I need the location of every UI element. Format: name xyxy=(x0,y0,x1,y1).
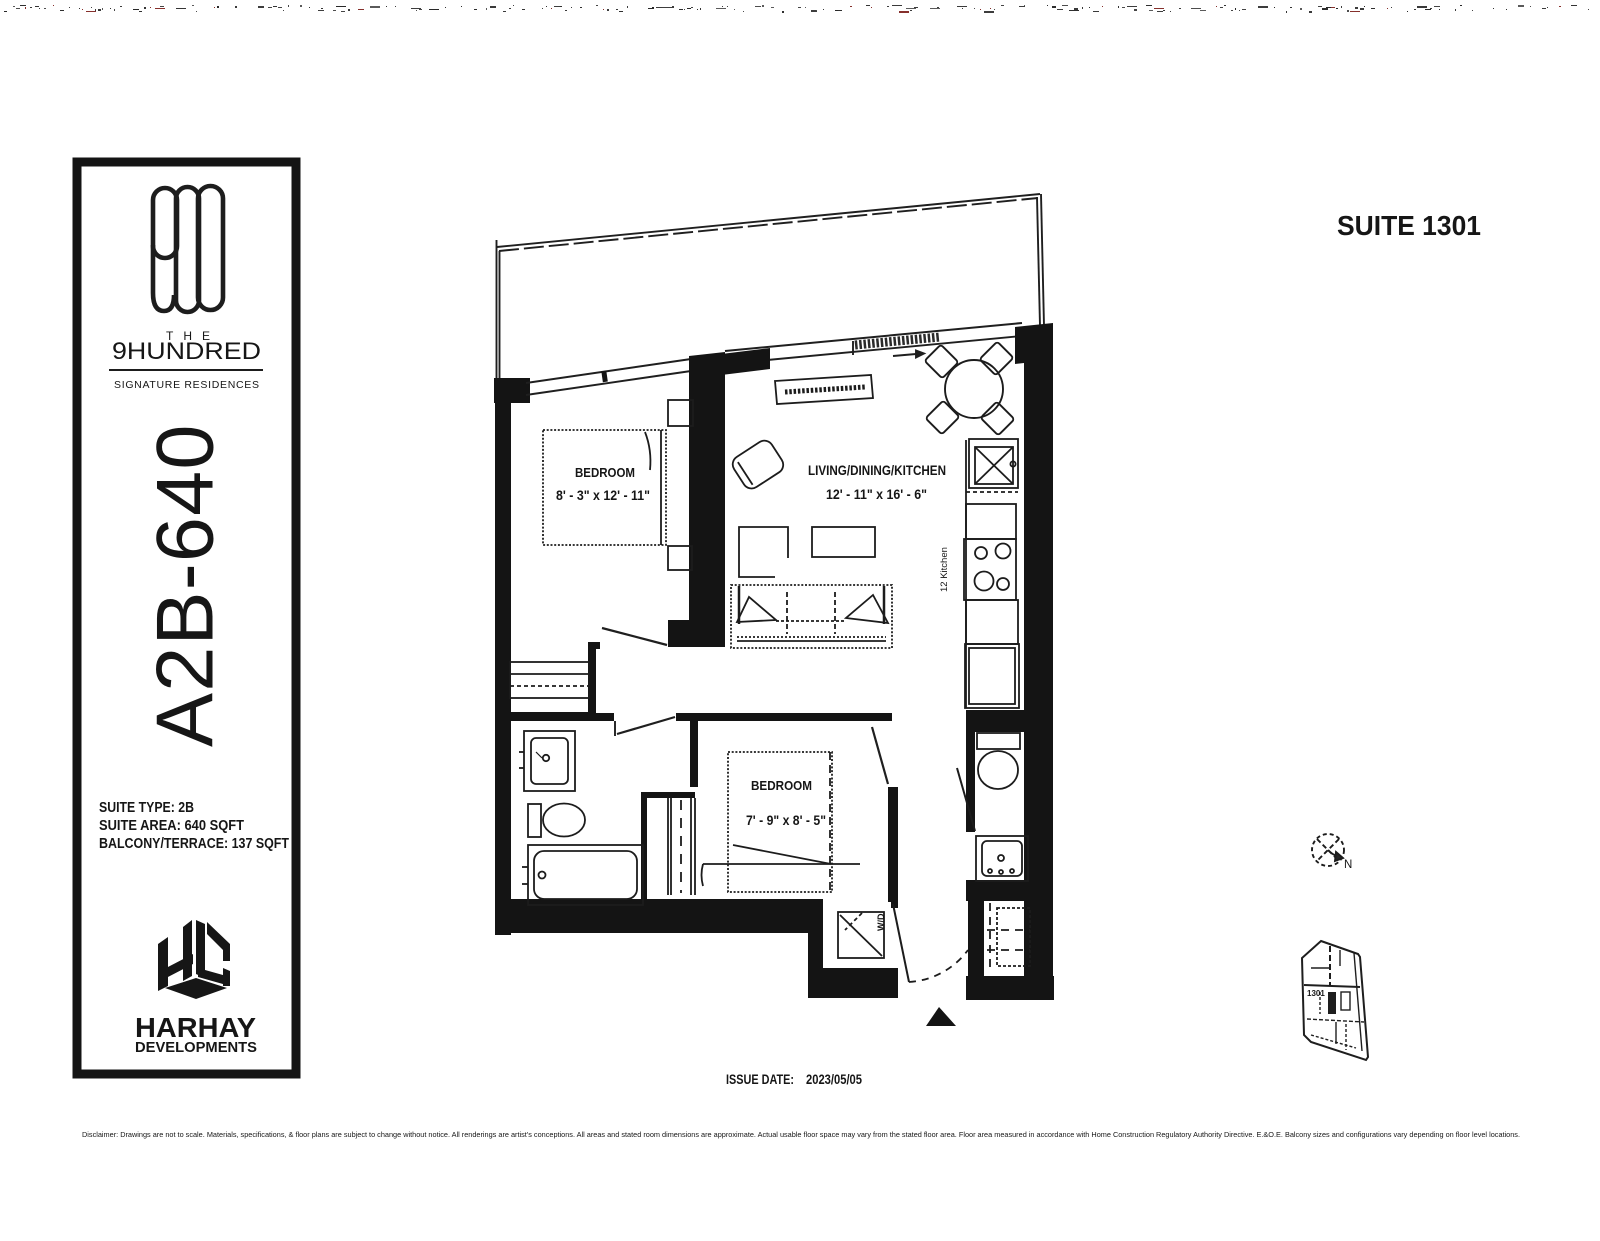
svg-text:2023/05/05: 2023/05/05 xyxy=(806,1071,862,1087)
svg-text:A2B-640: A2B-640 xyxy=(141,423,231,747)
svg-text:DEVELOPMENTS: DEVELOPMENTS xyxy=(135,1040,257,1056)
svg-text:Disclaimer: Drawings are not t: Disclaimer: Drawings are not to scale. M… xyxy=(82,1130,1520,1139)
svg-text:8' - 3" x 12' - 11": 8' - 3" x 12' - 11" xyxy=(556,488,650,503)
svg-text:SUITE TYPE: 2B: SUITE TYPE: 2B xyxy=(99,800,194,816)
svg-text:BEDROOM: BEDROOM xyxy=(575,465,635,480)
svg-text:LIVING/DINING/KITCHEN: LIVING/DINING/KITCHEN xyxy=(808,462,946,478)
svg-text:HARHAY: HARHAY xyxy=(135,1012,256,1043)
svg-text:W/D: W/D xyxy=(876,913,886,931)
svg-text:BALCONY/TERRACE: 137 SQFT: BALCONY/TERRACE: 137 SQFT xyxy=(99,836,289,852)
svg-text:12 Kitchen: 12 Kitchen xyxy=(939,547,950,592)
svg-text:SUITE AREA: 640 SQFT: SUITE AREA: 640 SQFT xyxy=(99,818,244,834)
svg-text:ISSUE DATE:: ISSUE DATE: xyxy=(726,1071,794,1087)
svg-text:SIGNATURE RESIDENCES: SIGNATURE RESIDENCES xyxy=(114,379,259,391)
svg-text:7' - 9" x 8' - 5": 7' - 9" x 8' - 5" xyxy=(746,813,826,828)
svg-text:1301: 1301 xyxy=(1307,989,1325,998)
svg-text:9HUNDRED: 9HUNDRED xyxy=(112,338,261,365)
svg-text:N: N xyxy=(1344,859,1352,871)
svg-text:SUITE 1301: SUITE 1301 xyxy=(1337,210,1481,241)
svg-text:12' - 11" x 16' - 6": 12' - 11" x 16' - 6" xyxy=(826,487,927,502)
svg-text:BEDROOM: BEDROOM xyxy=(751,778,812,793)
